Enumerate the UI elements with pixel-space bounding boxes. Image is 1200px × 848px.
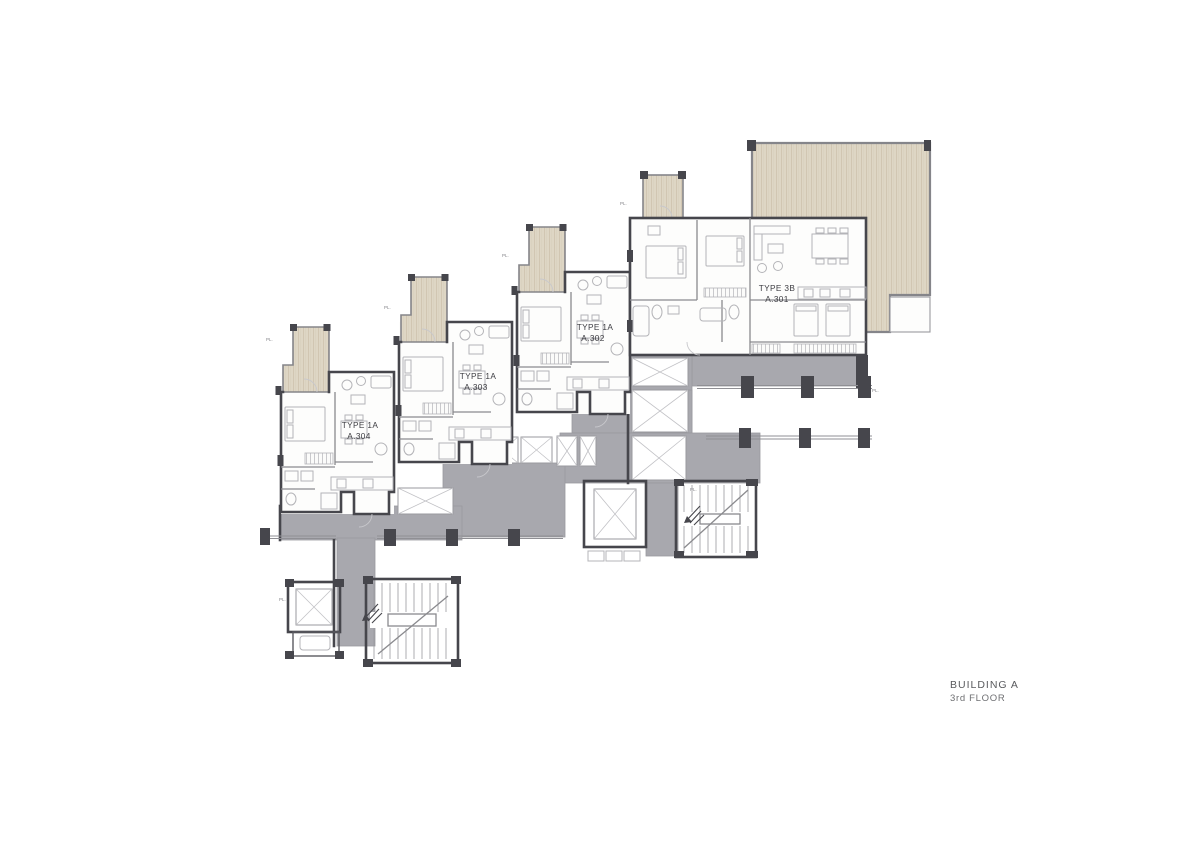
middle-staircase [674,479,758,558]
terrace-planter [890,297,930,332]
unit-number-label: A.304 [347,431,370,441]
unit-type-label: TYPE 1A [460,371,497,381]
lower-staircase [362,576,461,667]
middle-elevator [584,481,646,561]
unit-type-label: TYPE 1A [342,420,379,430]
unit-number-label: A.303 [464,382,487,392]
title-block: BUILDING A 3rd FLOOR [950,679,1019,704]
building-title: BUILDING A [950,679,1019,691]
pl-mark: PL. [690,487,697,492]
unit-number-label: A.302 [581,333,604,343]
unit-type-label: TYPE 1A [577,322,614,332]
pl-mark: PL. [502,253,509,258]
pl-mark: PL. [620,201,627,206]
floor-title: 3rd FLOOR [950,693,1005,704]
pl-mark: PL. [279,597,286,602]
pl-mark: PL. [872,388,879,393]
floor-plan-page: TYPE 3B A.301 TYPE 1A A.302 TYPE 1A A.30… [0,0,1200,848]
unit-type-label: TYPE 3B [759,283,796,293]
floor-plan-svg: TYPE 3B A.301 TYPE 1A A.302 TYPE 1A A.30… [0,0,1200,848]
unit-number-label: A.301 [765,294,788,304]
pl-mark: PL. [266,337,273,342]
balcony-a301 [643,175,683,218]
pl-mark: PL. [384,305,391,310]
